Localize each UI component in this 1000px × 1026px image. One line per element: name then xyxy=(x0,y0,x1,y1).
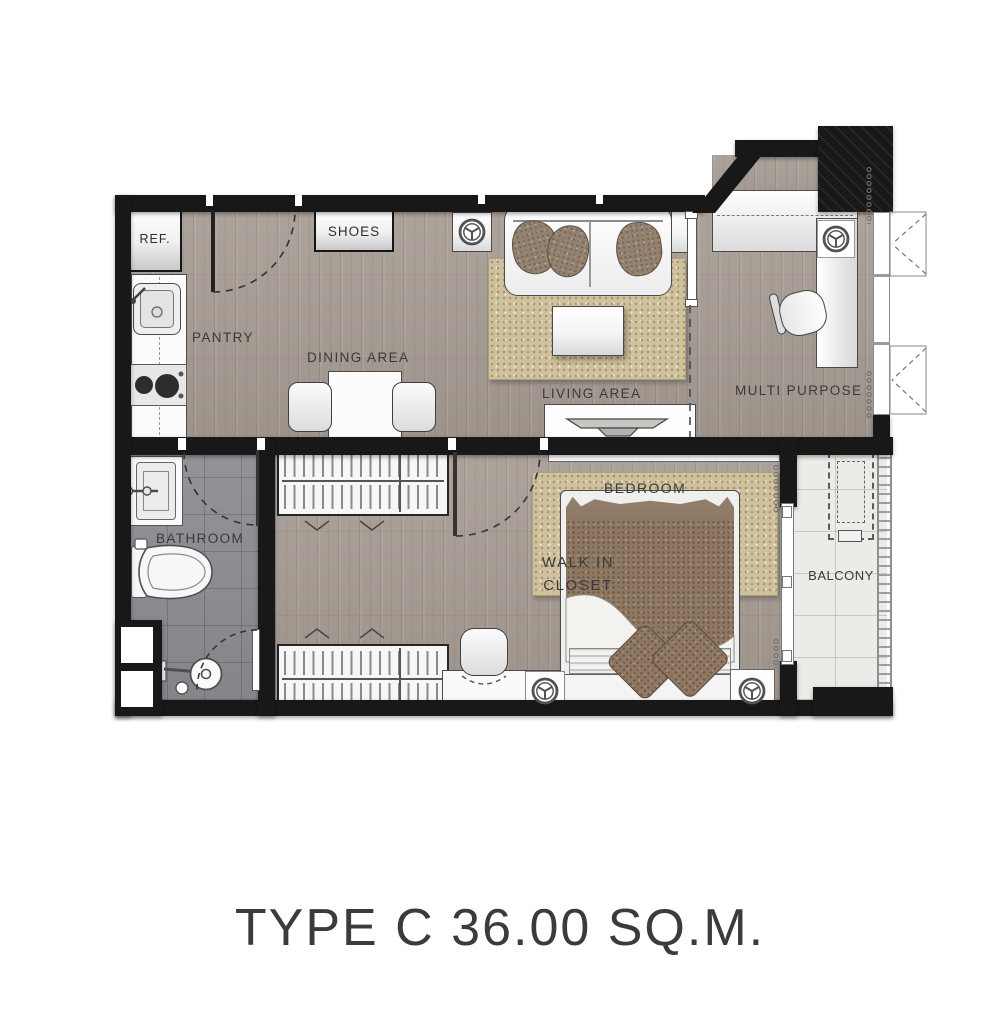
dining-chair-right xyxy=(392,382,436,432)
jamb-top-1 xyxy=(478,195,485,204)
hanger-row-top xyxy=(284,453,442,477)
balcony-sliding-door xyxy=(781,503,794,665)
jamb-top-2 xyxy=(596,195,603,204)
sprinkler-tile-multi xyxy=(817,220,855,258)
ref-label: REF. xyxy=(139,232,170,246)
hanger-row-bottom xyxy=(284,485,442,509)
wardrobe-divider xyxy=(399,450,401,512)
wall-middle xyxy=(130,437,893,455)
casement-window-1 xyxy=(890,212,926,276)
window-mullion-1 xyxy=(873,274,890,277)
curtain-coil-balcony-bottom xyxy=(772,638,780,668)
window-frame xyxy=(873,212,890,415)
shoes-label: SHOES xyxy=(328,224,380,239)
hanger-rail-top xyxy=(282,480,444,482)
room-label-living: LIVING AREA xyxy=(542,386,641,401)
walkin-line2: CLOSET xyxy=(543,577,613,594)
shower-door-leaf xyxy=(252,629,260,691)
wall-balcony-stub-bottom xyxy=(780,661,797,716)
stove xyxy=(130,364,187,406)
sofa-seat-divider xyxy=(589,221,591,287)
jamb-entry-right xyxy=(295,195,302,206)
jamb-bedroom-right xyxy=(540,438,548,450)
wardrobe-top xyxy=(277,446,449,516)
room-label-balcony: BALCONY xyxy=(794,568,888,583)
jamb-bath-left xyxy=(178,438,186,450)
floor-plan-page: REF. SHOES xyxy=(0,0,1000,1026)
room-label-dining: DINING AREA xyxy=(307,350,409,365)
curtain-coil-window-top xyxy=(865,166,873,224)
multi-room-door-leaf xyxy=(687,216,697,302)
casement-swing-2 xyxy=(892,348,926,412)
dressing-stool xyxy=(460,628,508,676)
room-label-bedroom: BEDROOM xyxy=(604,480,686,496)
curtain-coil-balcony-top xyxy=(772,464,780,514)
vanity-sink-inner xyxy=(143,471,169,511)
wall-bottom xyxy=(115,700,893,716)
desk-dashed-line xyxy=(717,215,853,216)
walkin-line1: WALK IN xyxy=(542,554,614,571)
shoes-cabinet: SHOES xyxy=(314,210,394,252)
jamb-bath-right xyxy=(257,438,265,450)
refrigerator: REF. xyxy=(128,206,182,272)
toilet-tank xyxy=(131,546,147,598)
ac-unit-inner xyxy=(837,461,865,523)
hanger-row-top-2 xyxy=(284,651,442,675)
slider-tab-mid xyxy=(782,576,792,588)
window-mullion-2 xyxy=(873,342,890,345)
ac-unit-base xyxy=(838,530,862,542)
room-label-multi: MULTI PURPOSE xyxy=(735,383,862,398)
slider-tab-top xyxy=(782,506,792,518)
jamb-bedroom-left xyxy=(448,438,456,450)
wall-multi-top xyxy=(735,140,827,157)
plan-title: TYPE C 36.00 SQ.M. xyxy=(0,898,1000,958)
sprinkler-tile-entry xyxy=(452,212,492,252)
jamb-entry-left xyxy=(206,195,213,206)
coffee-table xyxy=(552,306,624,356)
shower-niche-1 xyxy=(121,627,153,663)
dining-table xyxy=(328,371,402,438)
bedroom-door-leaf xyxy=(453,452,457,536)
entry-door-leaf xyxy=(211,210,215,292)
slider-tab-bottom xyxy=(782,650,792,662)
curtain-coil-window-bottom xyxy=(865,370,873,420)
multi-door-cap-top xyxy=(685,211,698,219)
bathroom-door-leaf xyxy=(256,450,259,526)
wall-top xyxy=(115,195,705,212)
kitchen-sink-basin xyxy=(140,290,174,328)
casement-window-2 xyxy=(890,346,926,414)
wall-corner-block xyxy=(818,126,893,212)
dining-chair-left xyxy=(288,382,332,432)
shower-niche-2 xyxy=(121,671,153,707)
room-label-bathroom: BATHROOM xyxy=(156,531,244,546)
casement-swing-1 xyxy=(892,214,926,274)
hanger-rail-bottom xyxy=(282,678,444,680)
room-label-walkin: WALK IN CLOSET xyxy=(502,551,654,597)
wall-balcony-stub-top xyxy=(780,437,797,507)
multi-door-cap-bottom xyxy=(685,299,698,307)
tv-console xyxy=(544,404,696,438)
wall-bathroom-divider xyxy=(258,437,275,716)
wall-balcony-corner xyxy=(813,687,893,716)
vanity-sink xyxy=(136,462,176,520)
room-label-pantry: PANTRY xyxy=(192,330,254,345)
